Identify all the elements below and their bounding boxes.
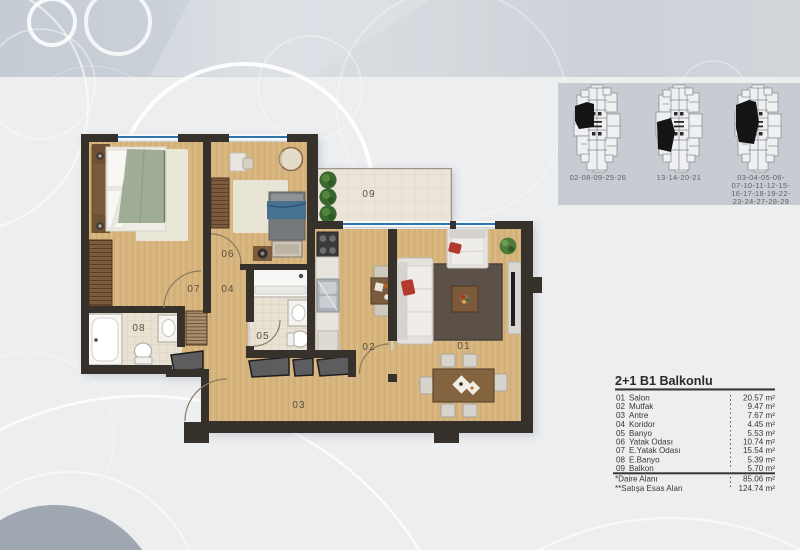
svg-text:02: 02 — [362, 342, 375, 353]
svg-text:07: 07 — [616, 446, 626, 455]
svg-text:08: 08 — [616, 455, 626, 464]
svg-text:10.74 m²: 10.74 m² — [743, 437, 775, 446]
svg-text:02: 02 — [616, 402, 626, 411]
svg-text:7.67 m²: 7.67 m² — [748, 411, 776, 420]
svg-text:Mutfak: Mutfak — [629, 402, 654, 411]
svg-text:5.70 m²: 5.70 m² — [748, 464, 776, 473]
svg-text:06: 06 — [221, 249, 234, 260]
svg-text:Yatak Odası: Yatak Odası — [629, 437, 673, 446]
svg-text:20.57 m²: 20.57 m² — [743, 393, 775, 402]
svg-text:9.47 m²: 9.47 m² — [748, 402, 776, 411]
svg-text:01: 01 — [616, 393, 626, 402]
svg-text:09: 09 — [362, 189, 375, 200]
svg-text:23-24-27-28-29: 23-24-27-28-29 — [733, 197, 790, 206]
svg-text:15.54 m²: 15.54 m² — [743, 446, 775, 455]
svg-text:09: 09 — [616, 464, 626, 473]
svg-text:04: 04 — [616, 420, 626, 429]
svg-text:*Daire Alanı: *Daire Alanı — [615, 475, 658, 484]
svg-text:02-08-09-25-26: 02-08-09-25-26 — [570, 173, 627, 182]
svg-text:08: 08 — [132, 323, 145, 334]
svg-text:04: 04 — [221, 284, 234, 295]
svg-text:2+1 B1 Balkonlu: 2+1 B1 Balkonlu — [615, 374, 713, 388]
svg-text:**Satışa Esas Alan: **Satışa Esas Alan — [615, 484, 683, 493]
svg-text:06: 06 — [616, 437, 626, 446]
svg-text:4.45 m²: 4.45 m² — [748, 420, 776, 429]
svg-text:01: 01 — [457, 341, 470, 352]
svg-text:03: 03 — [292, 400, 305, 411]
svg-text:03: 03 — [616, 411, 626, 420]
svg-text:E.Yatak Odası: E.Yatak Odası — [629, 446, 681, 455]
svg-text:13-14-20-21: 13-14-20-21 — [657, 173, 702, 182]
svg-text:Koridor: Koridor — [629, 420, 655, 429]
svg-text:124.74 m²: 124.74 m² — [739, 484, 776, 493]
svg-text:Balkon: Balkon — [629, 464, 654, 473]
svg-text:85.06 m²: 85.06 m² — [743, 475, 775, 484]
svg-text:E.Banyo: E.Banyo — [629, 455, 660, 464]
svg-text:5.39 m²: 5.39 m² — [748, 455, 776, 464]
svg-text:Salon: Salon — [629, 393, 650, 402]
svg-text:05: 05 — [256, 331, 269, 342]
svg-text:Antre: Antre — [629, 411, 649, 420]
svg-text:07: 07 — [187, 284, 200, 295]
